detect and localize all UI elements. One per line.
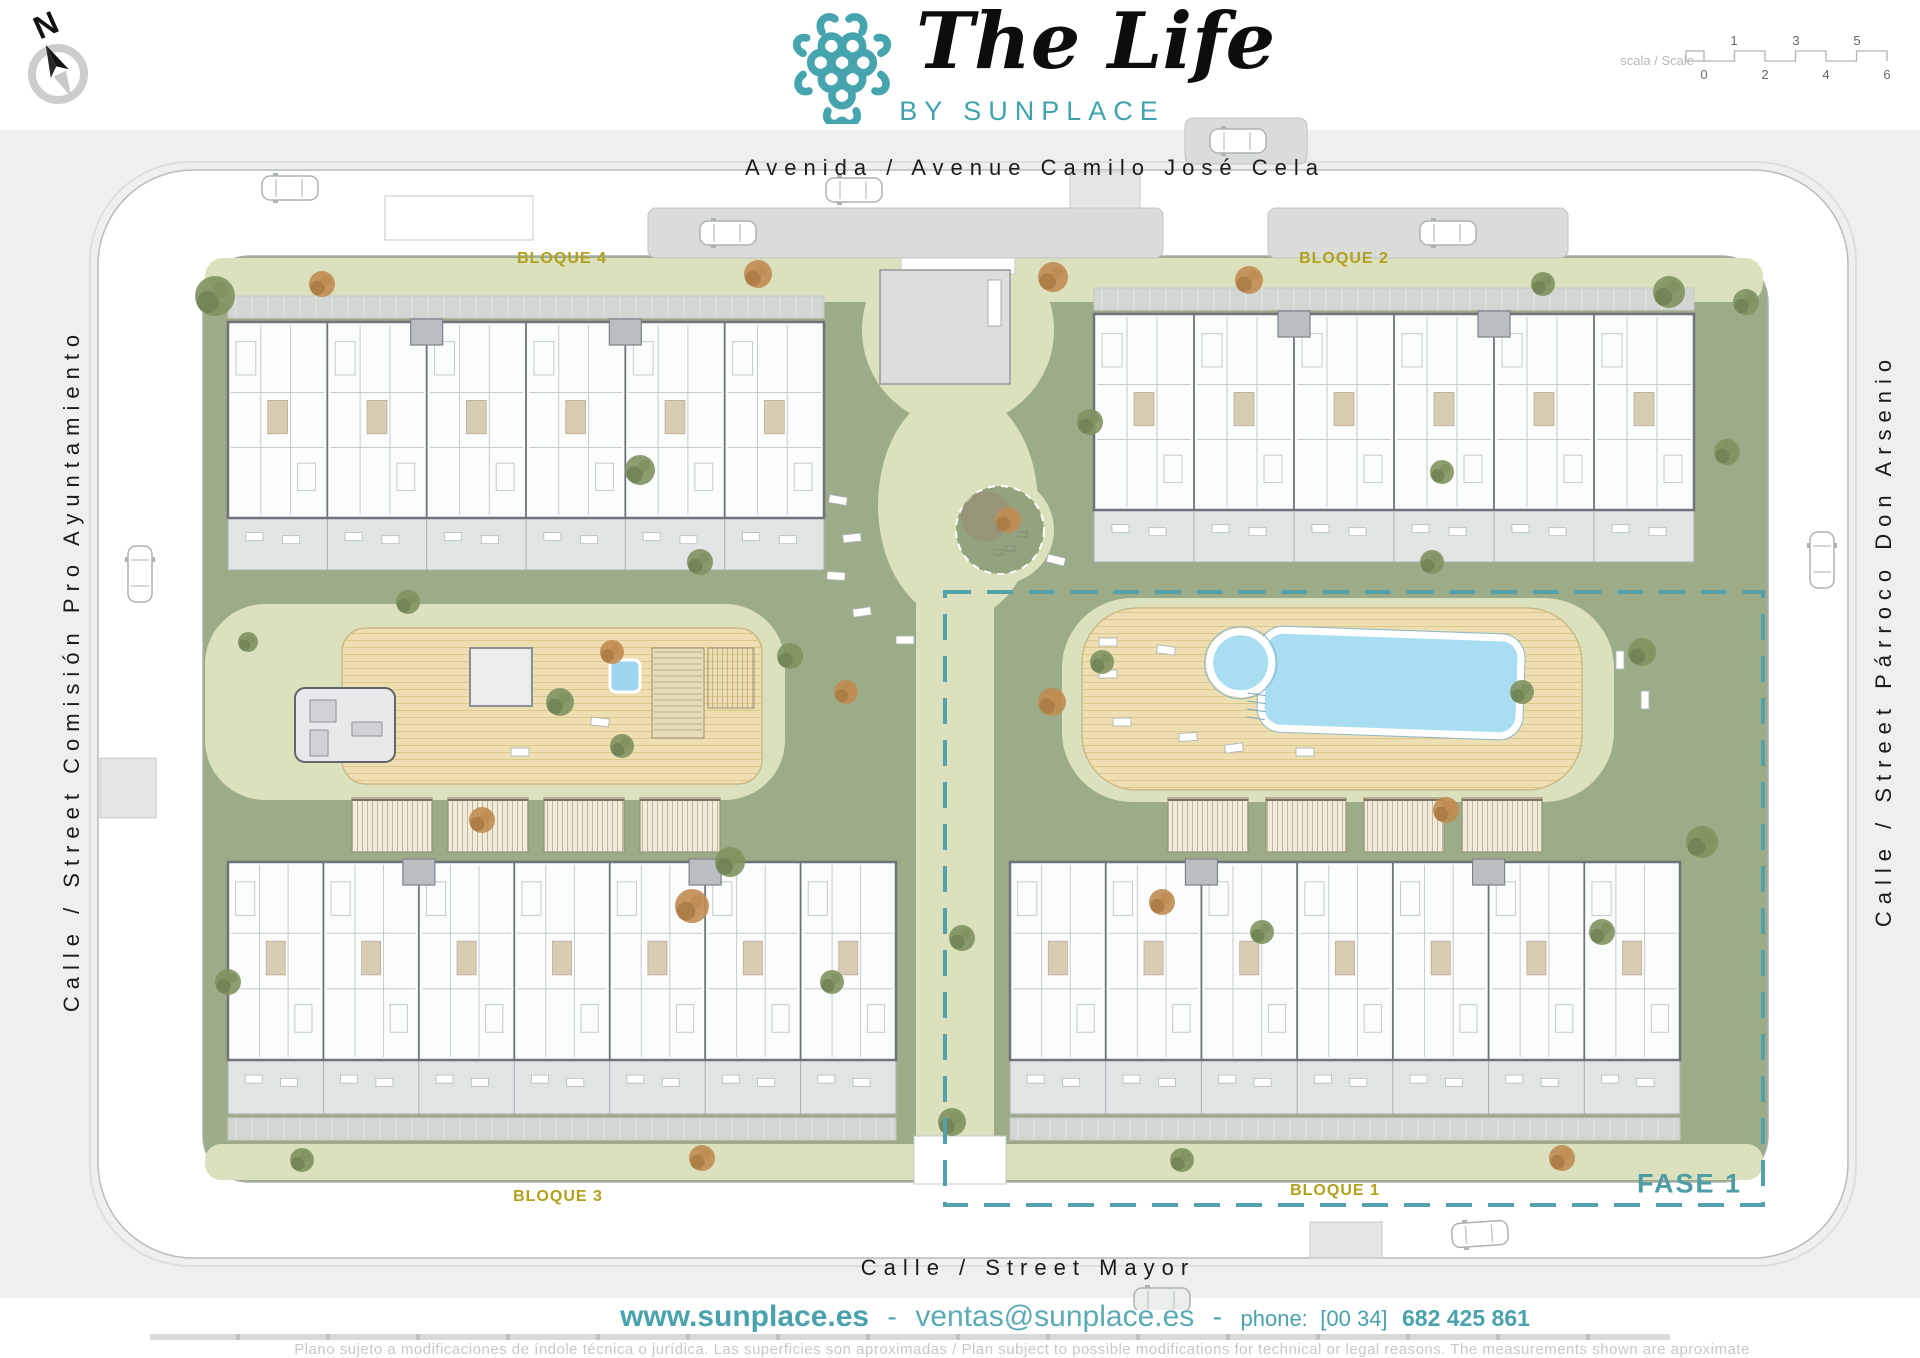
scale-tick: 4 (1822, 67, 1829, 82)
graphic-scale-bar: Escala / Scale 1 3 5 0 2 4 6 (1620, 15, 1920, 85)
bloque-1-building (1010, 859, 1680, 1140)
scale-tick: 5 (1853, 33, 1860, 48)
footer-phone-number: 682 425 861 (1402, 1305, 1530, 1331)
scale-tick: 2 (1761, 67, 1768, 82)
compass-n-letter: N (28, 8, 64, 46)
label-bloque-3: BLOQUE 3 (513, 1188, 603, 1206)
car-icon (125, 546, 155, 602)
bloque-2-building (1094, 288, 1694, 562)
compass-north-icon: N (8, 8, 108, 120)
car-icon (262, 173, 318, 203)
scale-tick: 0 (1700, 67, 1707, 82)
bloque-3-building (228, 859, 896, 1140)
footer-phone-prefix: [00 34] (1320, 1306, 1387, 1331)
label-bloque-4: BLOQUE 4 (517, 250, 607, 268)
central-plaza (880, 270, 1010, 384)
car-icon (1420, 218, 1476, 248)
label-fase-1: FASE 1 (1637, 1169, 1742, 1200)
footer-website: www.sunplace.es (620, 1300, 869, 1333)
car-icon (700, 218, 756, 248)
car-icon (1807, 532, 1837, 588)
scale-label: Escala / Scale (1620, 53, 1694, 68)
footer-separator: - (1213, 1301, 1222, 1332)
street-label-left: Calle / Street Comisión Pro Ayuntamiento (59, 328, 85, 1012)
logo-subtitle: BY SUNPLACE (899, 96, 1165, 127)
bloque-4-building (228, 296, 824, 570)
scale-tick: 6 (1883, 67, 1890, 82)
footer-disclaimer: Plano sujeto a modificaciones de índole … (294, 1341, 1750, 1358)
scale-tick: 3 (1792, 33, 1799, 48)
footer-contact: www.sunplace.es - ventas@sunplace.es - p… (620, 1300, 1530, 1334)
street-label-right: Calle / Street Párroco Don Arsenio (1871, 353, 1897, 927)
sunplace-knot-icon (783, 6, 901, 124)
label-bloque-1: BLOQUE 1 (1290, 1182, 1380, 1200)
car-icon (1210, 126, 1266, 156)
logo-title: The Life (916, 0, 1275, 87)
amenity-deck (295, 628, 762, 784)
street-label-top: Avenida / Avenue Camilo José Cela (745, 155, 1325, 181)
label-bloque-2: BLOQUE 2 (1299, 250, 1389, 268)
footer-phone-label: phone: (1241, 1306, 1308, 1331)
site-plan-page: N The Life BY SUNPLACE Escala / Scale 1 … (0, 0, 1920, 1358)
footer-email: ventas@sunplace.es (915, 1300, 1194, 1333)
site-plan-drawing (0, 110, 1920, 1310)
scale-tick: 1 (1730, 33, 1737, 48)
footer-ruler-strip (150, 1334, 1670, 1340)
street-label-bottom: Calle / Street Mayor (861, 1255, 1195, 1281)
footer-separator: - (888, 1301, 897, 1332)
